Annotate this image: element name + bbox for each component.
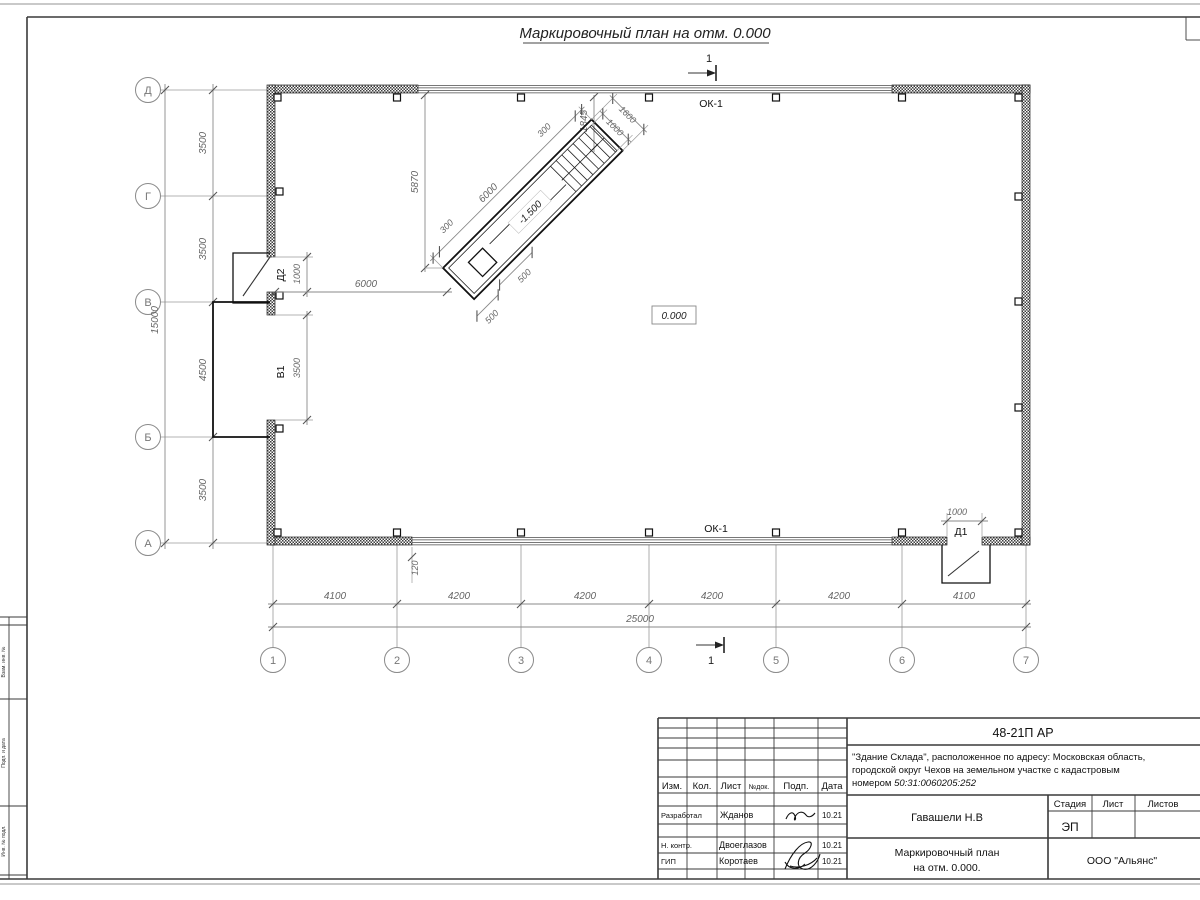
wall-bottom-left <box>270 537 412 545</box>
dim-ramp-500-b: 500 <box>483 308 501 326</box>
dim-4100: 4100 <box>324 591 347 602</box>
building-walls <box>267 85 1030 545</box>
tick-marks <box>161 86 217 547</box>
row-date-2: 10.21 <box>822 841 843 850</box>
d2-vestibule <box>233 253 270 303</box>
dim-4200: 4200 <box>701 591 724 602</box>
axis-number: 5 <box>773 655 779 667</box>
ramp-group: -1.500 6000 300 300 1000 1600 500 500 <box>410 71 669 330</box>
row-role-razrabotal: Разработал <box>661 811 702 820</box>
cadastral-prefix: номером <box>852 778 894 789</box>
wall-right <box>1022 85 1030 545</box>
sheet-label: Лист <box>1103 799 1124 810</box>
d1-vestibule <box>942 545 990 583</box>
axes-bottom: 1 2 3 4 5 6 7 <box>261 545 1039 673</box>
col-izm: Изм. <box>662 781 682 792</box>
strip-label-vzam: Взам. инв. № <box>1 647 7 678</box>
col-data: Дата <box>821 781 843 792</box>
section-number: 1 <box>708 655 714 667</box>
chief-name: Гавашели Н.В <box>911 812 983 824</box>
signature-gip <box>785 842 820 869</box>
col-kol: Кол. <box>693 781 712 792</box>
dim-ramp-300-sw: 300 <box>438 217 456 235</box>
axis-letter: Г <box>145 191 151 203</box>
drawing-title: Маркировочный план на отм. 0.000 <box>519 25 771 43</box>
gate-label-v1: В1 <box>275 365 287 378</box>
axis-number: 3 <box>518 655 524 667</box>
dim-120-text: 120 <box>410 560 420 575</box>
plan-svg: Взам. инв. № Подп. и дата Инв. № подл. М… <box>0 0 1200 900</box>
axis-number: 6 <box>899 655 905 667</box>
drawing-sheet: Взам. инв. № Подп. и дата Инв. № подл. М… <box>0 0 1200 900</box>
title-block: 48-21П АР "Здание Склада", расположенное… <box>658 718 1200 879</box>
drawing-name-line1: Маркировочный план <box>895 847 1000 859</box>
section-number: 1 <box>706 53 712 65</box>
window-band-top <box>418 85 892 93</box>
dims-left: 3500 3500 4500 3500 15000 <box>150 84 217 549</box>
door-label-d2: Д2 <box>275 268 287 281</box>
d2-door-swing <box>243 257 270 296</box>
dim-ramp-500-a: 500 <box>515 267 533 285</box>
axis-number: 4 <box>646 655 652 667</box>
elevation-zero-text: 0.000 <box>661 311 686 322</box>
window-band-bottom <box>412 537 892 545</box>
ramp-pit <box>468 248 496 276</box>
window-label-bottom: ОК-1 <box>704 523 728 535</box>
ramp-page-dims: 5870 1845 6000 <box>271 91 598 296</box>
sheets-label: Листов <box>1148 799 1179 810</box>
axis-letter: Б <box>144 432 151 444</box>
doc-number: 48-21П АР <box>992 726 1053 740</box>
dim-3500: 3500 <box>198 478 209 501</box>
left-margin-strip: Взам. инв. № Подп. и дата Инв. № подл. <box>0 617 27 879</box>
project-desc-line3: номером 50:31:0060205:252 <box>852 778 977 789</box>
company-name: ООО "Альянс" <box>1087 855 1157 867</box>
row-role-gip: ГИП <box>661 857 676 866</box>
dim-d1-1000: 1000 <box>947 507 967 517</box>
dim-6000-wall: 6000 <box>355 279 378 290</box>
door-label-d1: Д1 <box>955 526 968 538</box>
section-mark-top: 1 <box>688 53 716 81</box>
signature-razrabotal <box>786 812 815 820</box>
dim-d2-1000: 1000 <box>292 264 302 284</box>
dim-ramp-6000: 6000 <box>477 181 501 205</box>
axis-number: 2 <box>394 655 400 667</box>
dim-v1-3500: 3500 <box>292 358 302 378</box>
drawing-name-line2: на отм. 0.000. <box>913 862 980 874</box>
v1-dock <box>213 302 270 437</box>
project-desc-line1: "Здание Склада", расположенное по адресу… <box>852 752 1145 763</box>
wall-top-right <box>892 85 1030 93</box>
dim-4500: 4500 <box>198 358 209 381</box>
col-list: Лист <box>721 781 742 792</box>
row-role-nkontr: Н. контр. <box>661 841 692 850</box>
gate-v1: В1 3500 <box>213 302 313 437</box>
elevation-mark-zero: 0.000 <box>652 306 696 324</box>
axis-letter: А <box>144 538 152 550</box>
d1-door-swing <box>948 551 979 576</box>
col-ndok: №док. <box>749 784 770 791</box>
row-name-zhdanov: Жданов <box>720 810 754 820</box>
dim-120: 120 <box>408 547 420 583</box>
dim-4200: 4200 <box>574 591 597 602</box>
axis-number: 1 <box>270 655 276 667</box>
row-name-dvoeglazov: Двоеглазов <box>719 840 767 850</box>
cadastral-number: 50:31:0060205:252 <box>894 778 977 789</box>
dim-5870: 5870 <box>410 170 421 193</box>
dim-ramp-1600: 1600 <box>617 104 638 125</box>
wall-top-left <box>270 85 418 93</box>
row-date-3: 10.21 <box>822 857 843 866</box>
dim-25000: 25000 <box>625 614 654 625</box>
axis-number: 7 <box>1023 655 1029 667</box>
row-name-korotaev: Коротаев <box>719 856 758 866</box>
dim-4200: 4200 <box>828 591 851 602</box>
page-title: Маркировочный план на отм. 0.000 <box>519 25 771 42</box>
dim-4200: 4200 <box>448 591 471 602</box>
strip-label-inv: Инв. № подл. <box>1 825 7 856</box>
dims-bottom: 4100 4200 4200 4200 4200 4100 25000 <box>268 591 1031 631</box>
dim-3500: 3500 <box>198 237 209 260</box>
section-mark-bottom: 1 <box>696 637 724 667</box>
window-label-top: ОК-1 <box>699 98 723 110</box>
dim-ramp-300-ne: 300 <box>535 121 553 139</box>
row-date-1: 10.21 <box>822 811 843 820</box>
stage-label: Стадия <box>1054 799 1086 810</box>
dim-3500: 3500 <box>198 131 209 154</box>
axis-letter: Д <box>144 85 152 97</box>
wall-bottom-mid <box>892 537 947 545</box>
project-desc-line2: городской округ Чехов на земельном участ… <box>852 765 1120 776</box>
stage-value: ЭП <box>1061 820 1078 834</box>
col-podp: Подп. <box>783 781 808 792</box>
wall-left-lower <box>267 420 275 545</box>
dim-15000: 15000 <box>150 306 161 334</box>
column-markers <box>274 94 1022 536</box>
dim-4100: 4100 <box>953 591 976 602</box>
strip-label-podp: Подп. и дата <box>1 738 7 768</box>
wall-left-upper <box>267 85 275 257</box>
